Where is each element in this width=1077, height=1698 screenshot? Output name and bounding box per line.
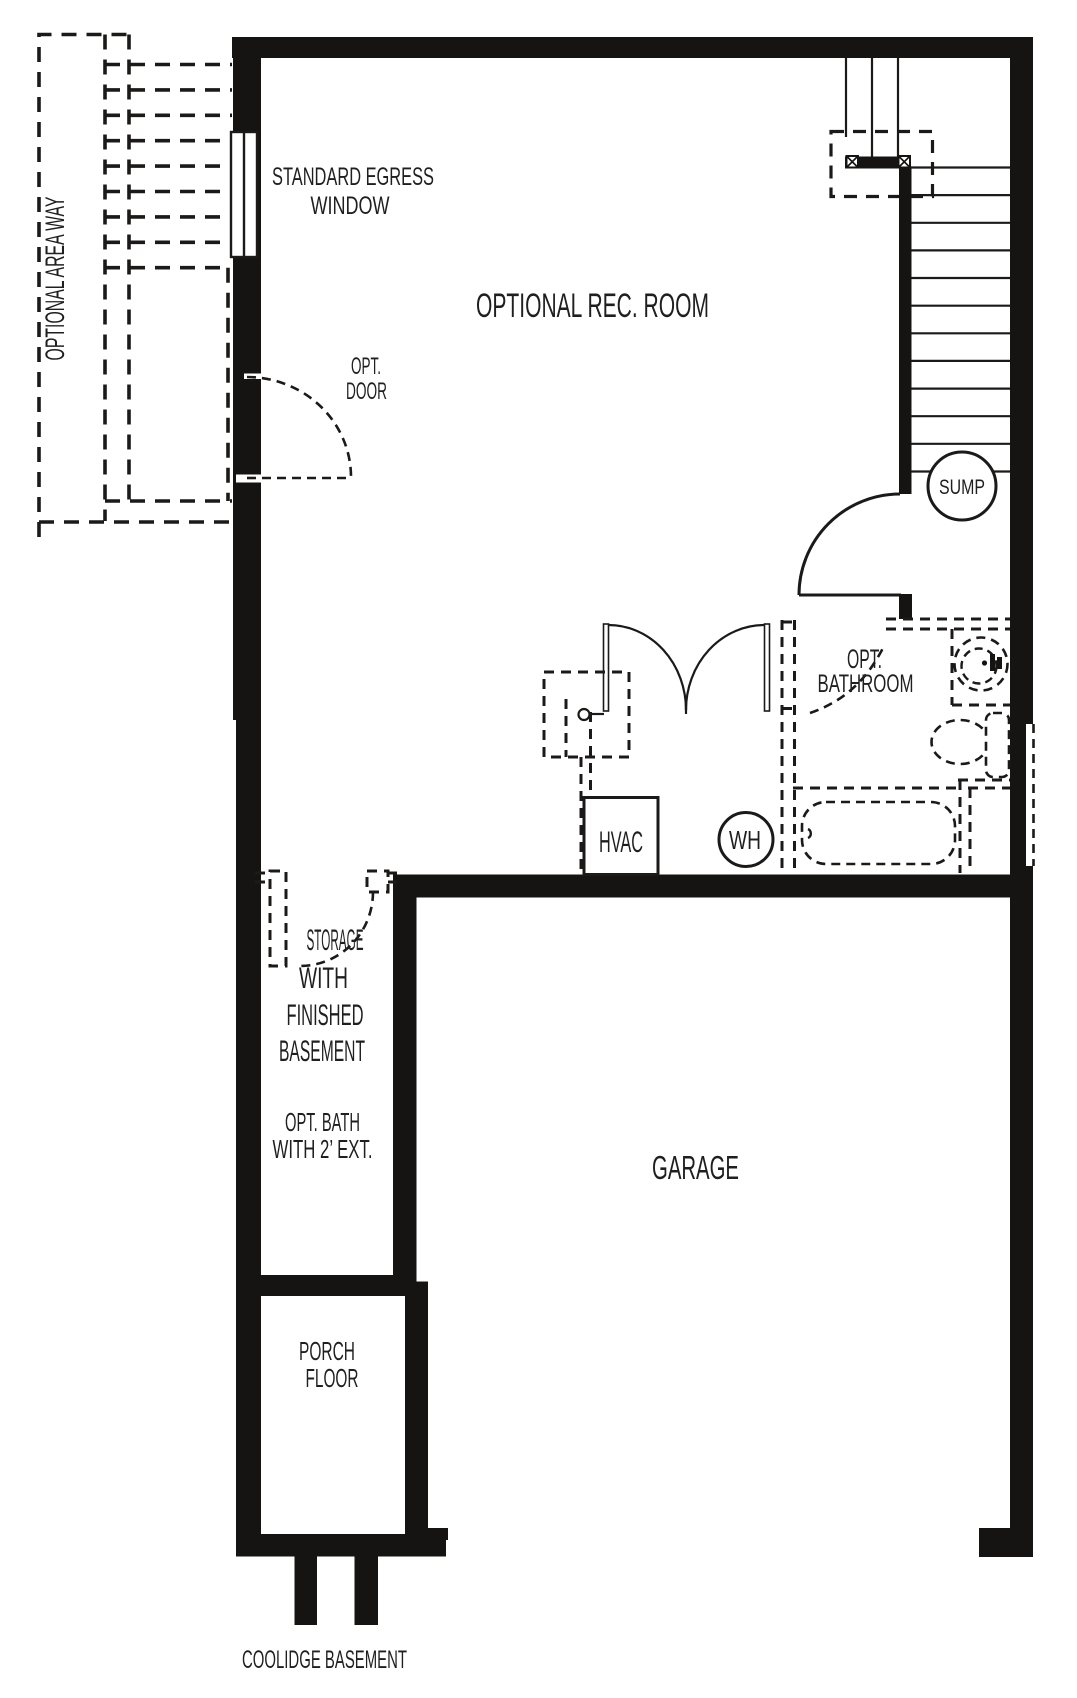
svg-text:STANDARD EGRESS: STANDARD EGRESS [272, 163, 434, 191]
svg-text:OPT. BATH: OPT. BATH [285, 1107, 360, 1137]
svg-text:WINDOW: WINDOW [311, 192, 390, 220]
svg-text:COOLIDGE BASEMENT: COOLIDGE BASEMENT [242, 1646, 407, 1674]
svg-text:WITH 2’ EXT.: WITH 2’ EXT. [273, 1134, 373, 1164]
svg-text:DOOR: DOOR [346, 378, 387, 405]
svg-text:GARAGE: GARAGE [652, 1149, 739, 1186]
svg-text:SUMP: SUMP [939, 476, 985, 499]
svg-text:FINISHED: FINISHED [287, 999, 364, 1032]
svg-text:OPT.: OPT. [351, 353, 381, 380]
svg-text:OPTIONAL AREA WAY: OPTIONAL AREA WAY [40, 197, 70, 361]
svg-text:PORCH: PORCH [299, 1336, 355, 1366]
svg-text:BATHROOM: BATHROOM [818, 670, 914, 698]
svg-text:STORAGE: STORAGE [307, 924, 364, 957]
svg-text:WH: WH [729, 825, 761, 855]
svg-text:WITH: WITH [299, 962, 348, 995]
svg-text:HVAC: HVAC [599, 826, 643, 859]
svg-text:BASEMENT: BASEMENT [279, 1035, 365, 1068]
svg-text:FLOOR: FLOOR [306, 1363, 359, 1393]
svg-text:OPTIONAL REC. ROOM: OPTIONAL REC. ROOM [476, 287, 709, 325]
